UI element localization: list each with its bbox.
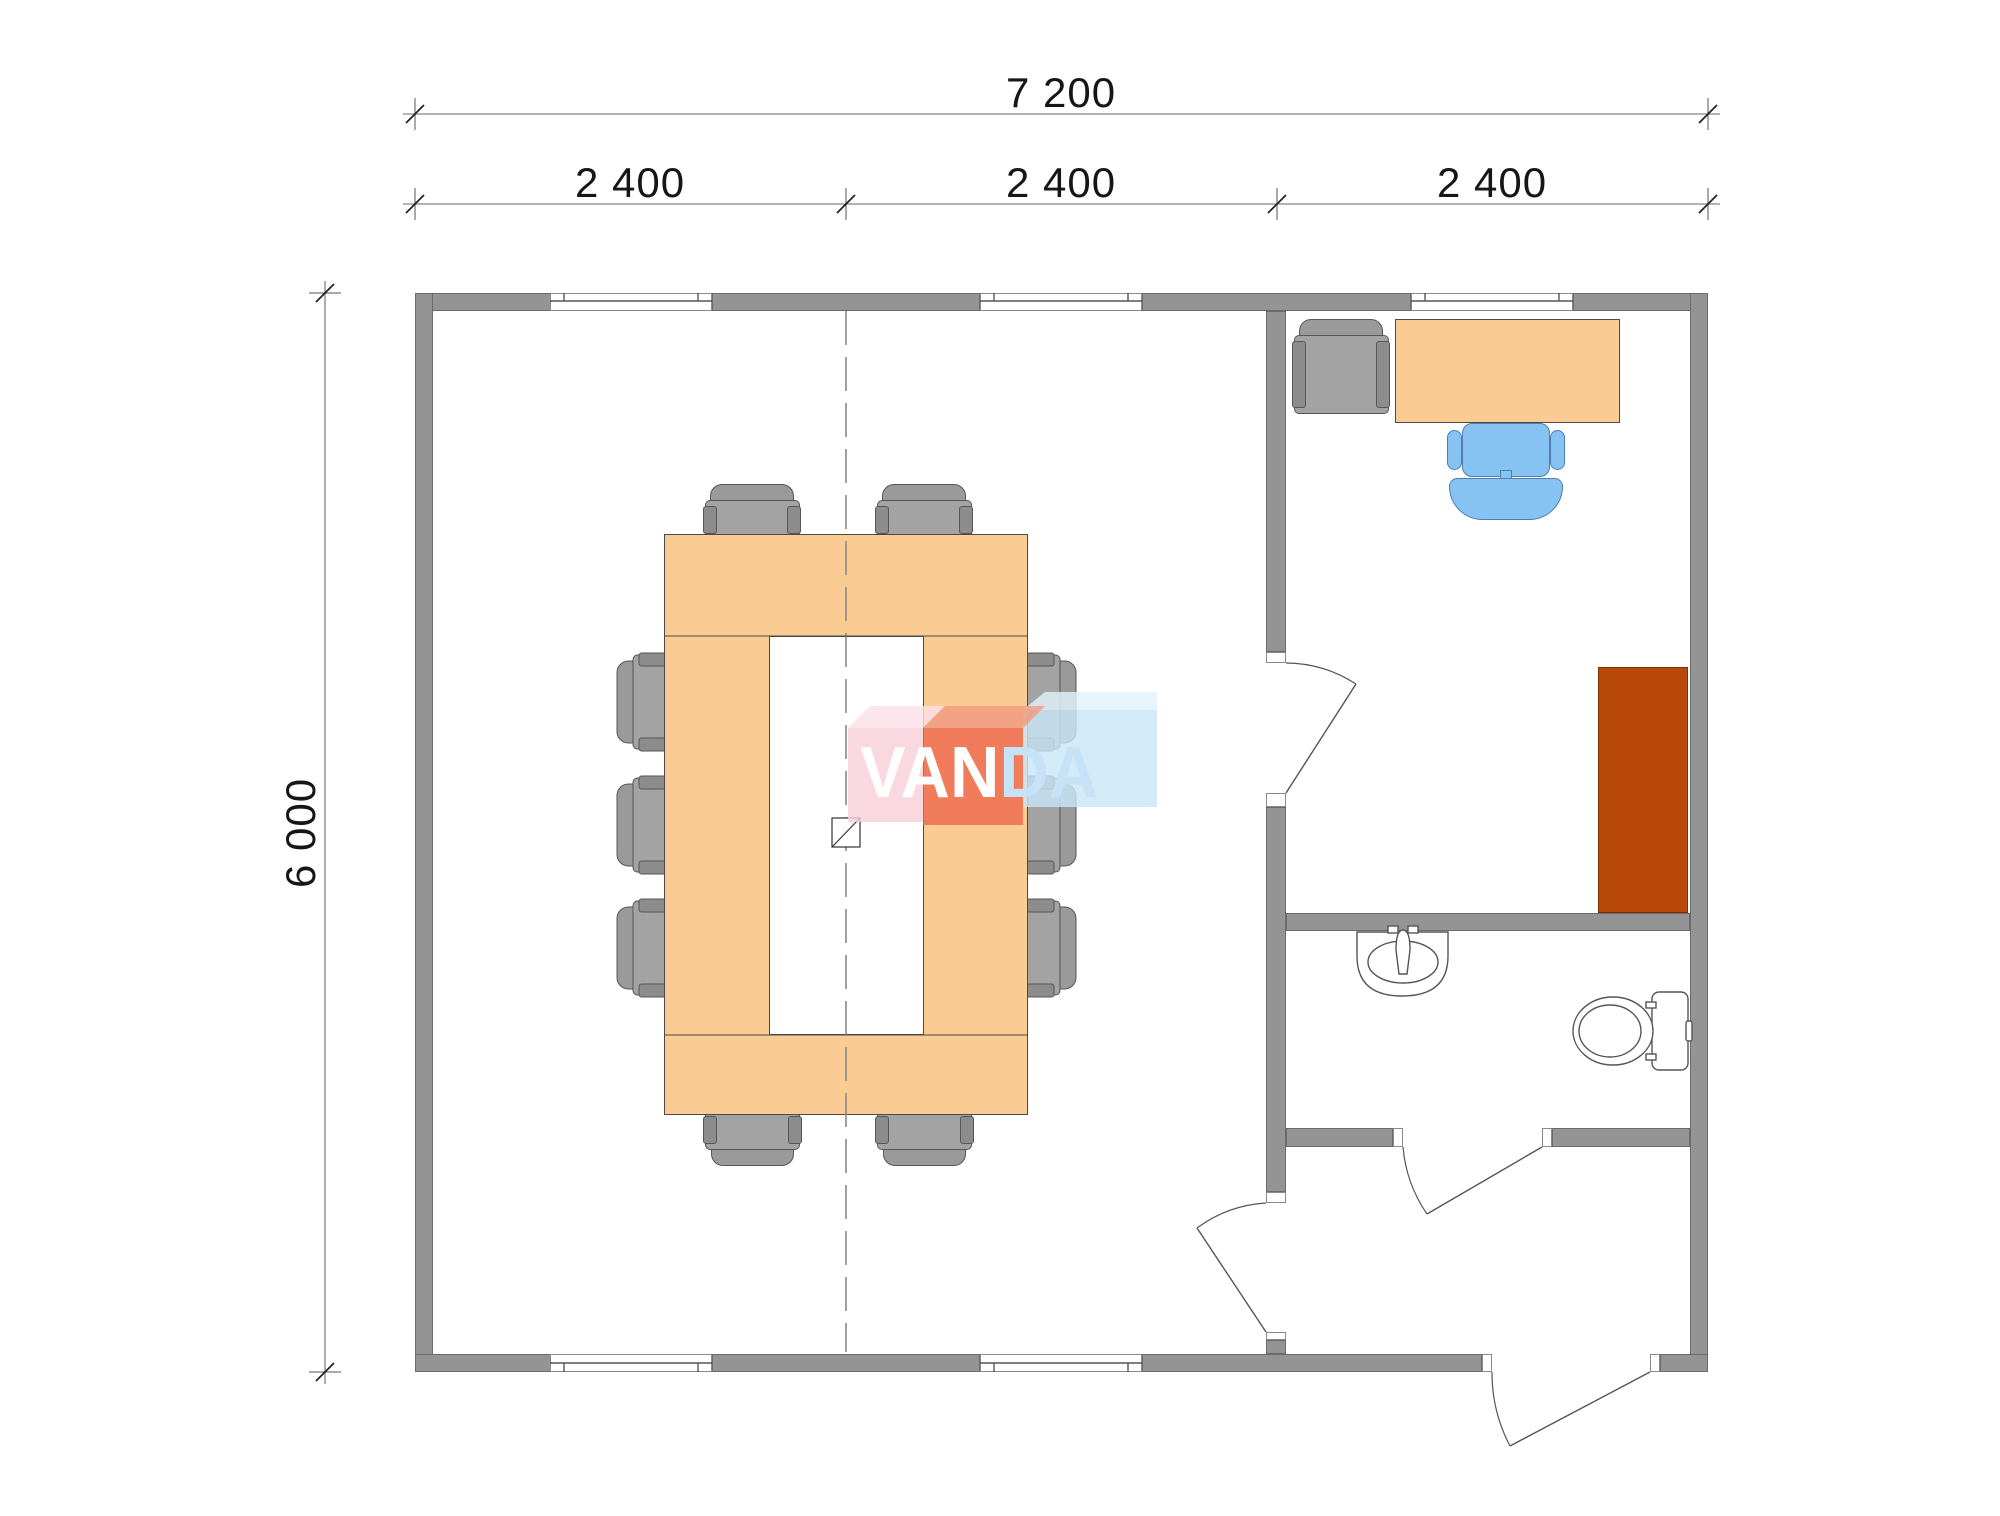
column-symbol bbox=[832, 818, 860, 847]
dimension-line-total bbox=[403, 98, 1720, 130]
sink-icon bbox=[1357, 926, 1448, 996]
dimension-line-modules bbox=[403, 188, 1720, 220]
watermark-text-van: VAN bbox=[860, 742, 999, 806]
toilet-icon bbox=[1573, 992, 1692, 1070]
bathroom-door bbox=[1403, 1147, 1542, 1214]
watermark-text: VAN DA bbox=[860, 742, 1121, 806]
watermark-text-da: DA bbox=[999, 742, 1098, 806]
office-door bbox=[1286, 663, 1356, 793]
dimension-line-height bbox=[309, 281, 341, 1384]
entrance-door bbox=[1492, 1372, 1650, 1446]
meeting-room-door bbox=[1197, 1203, 1266, 1332]
window-glazing bbox=[550, 293, 1573, 1372]
floor-plan: 7 200 2 400 2 400 2 400 6 000 bbox=[0, 0, 2000, 1516]
